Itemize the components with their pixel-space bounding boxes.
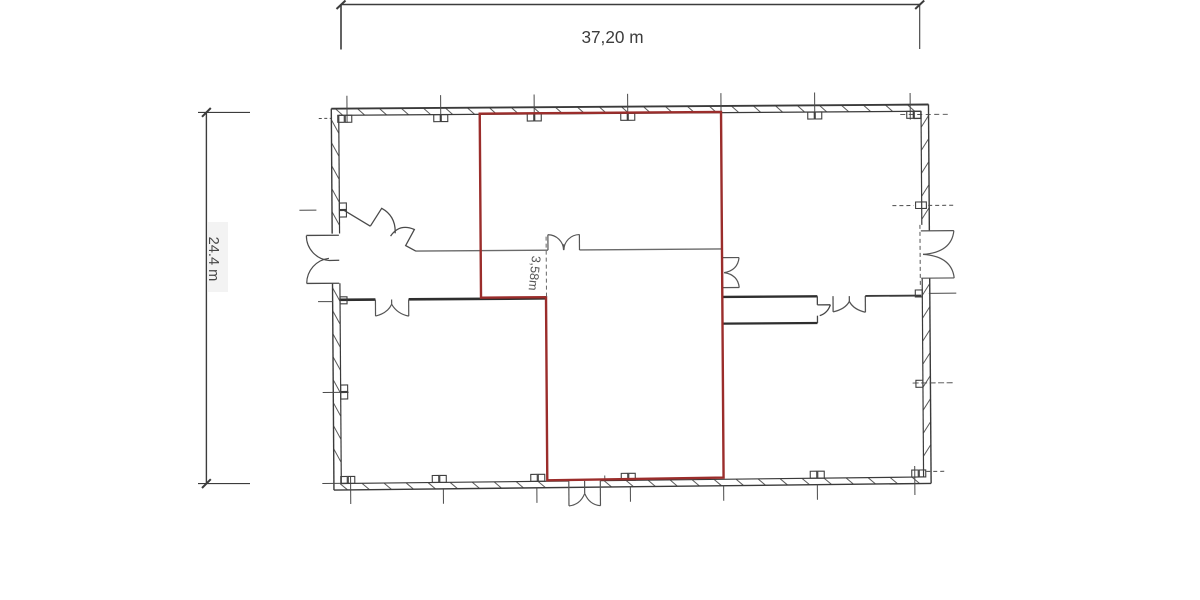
svg-text:24.4 m: 24.4 m — [205, 237, 221, 282]
svg-text:37,20 m: 37,20 m — [581, 27, 643, 47]
